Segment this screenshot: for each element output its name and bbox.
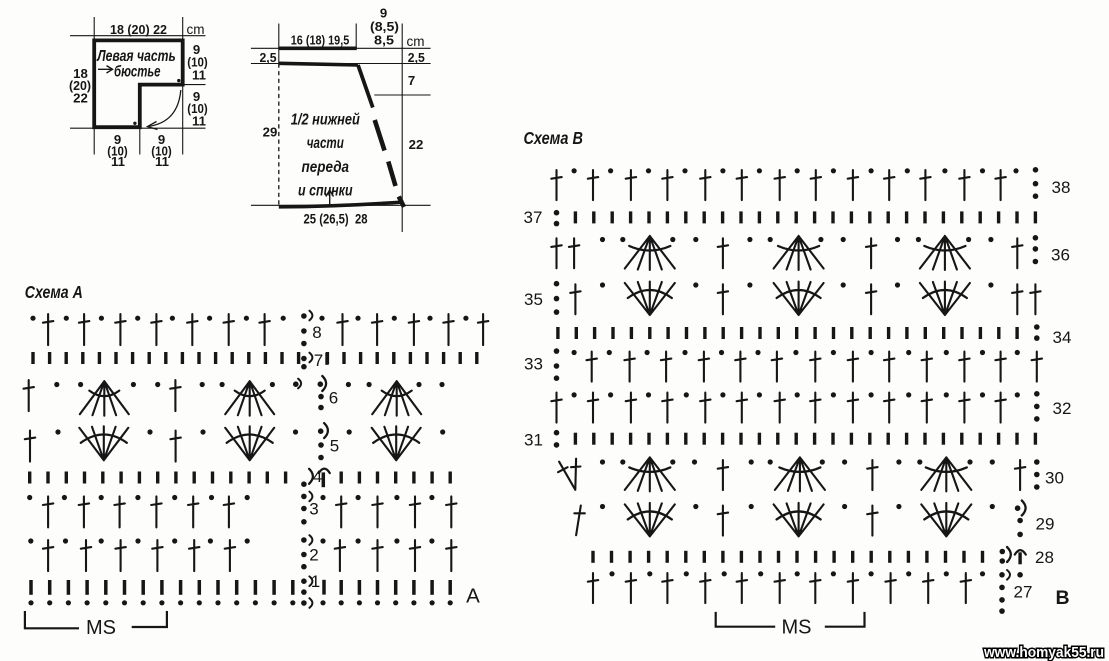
svg-text:3: 3 bbox=[309, 500, 318, 519]
svg-text:части: части bbox=[307, 135, 344, 152]
svg-text:11: 11 bbox=[155, 154, 169, 169]
svg-text:B: B bbox=[1055, 587, 1069, 609]
svg-text:27: 27 bbox=[1014, 583, 1033, 602]
svg-text:11: 11 bbox=[192, 68, 206, 83]
svg-text:1: 1 bbox=[311, 572, 320, 591]
svg-text:4: 4 bbox=[313, 467, 322, 486]
svg-text:33: 33 bbox=[524, 355, 543, 374]
svg-text:37: 37 bbox=[524, 208, 543, 227]
svg-text:A: A bbox=[466, 585, 480, 608]
svg-text:и спинки: и спинки bbox=[298, 182, 353, 199]
svg-text:22: 22 bbox=[73, 91, 88, 106]
svg-text:1/2 нижней: 1/2 нижней bbox=[291, 112, 360, 129]
svg-text:переда: переда bbox=[302, 159, 350, 176]
svg-text:22: 22 bbox=[409, 137, 424, 152]
svg-text:8: 8 bbox=[312, 323, 321, 342]
svg-text:16 (18) 19,5: 16 (18) 19,5 bbox=[291, 33, 350, 48]
svg-text:29: 29 bbox=[1036, 515, 1055, 534]
svg-text:36: 36 bbox=[1051, 246, 1070, 265]
svg-text:5: 5 bbox=[330, 436, 339, 455]
svg-text:Левая часть: Левая часть bbox=[96, 48, 175, 65]
svg-text:7: 7 bbox=[314, 351, 323, 370]
svg-text:www.homyak55.ru: www.homyak55.ru bbox=[983, 644, 1104, 661]
svg-text:7: 7 bbox=[408, 73, 415, 88]
svg-text:18 (20) 22: 18 (20) 22 bbox=[110, 22, 167, 37]
svg-text:28: 28 bbox=[1035, 548, 1054, 567]
svg-text:34: 34 bbox=[1053, 328, 1072, 347]
svg-text:Схема B: Схема B bbox=[523, 128, 583, 148]
svg-text:MS: MS bbox=[782, 617, 812, 639]
svg-text:бюстье: бюстье bbox=[114, 64, 161, 81]
svg-text:2,5: 2,5 bbox=[260, 50, 277, 65]
svg-text:31: 31 bbox=[524, 431, 543, 450]
svg-text:32: 32 bbox=[1053, 399, 1072, 418]
svg-text:cm: cm bbox=[187, 22, 205, 37]
svg-text:cm: cm bbox=[407, 34, 425, 49]
svg-text:11: 11 bbox=[111, 154, 125, 169]
svg-text:6: 6 bbox=[329, 389, 338, 408]
svg-text:MS: MS bbox=[86, 617, 116, 639]
svg-text:2: 2 bbox=[309, 546, 318, 565]
svg-text:35: 35 bbox=[524, 290, 543, 309]
svg-text:30: 30 bbox=[1045, 469, 1064, 488]
svg-text:11: 11 bbox=[192, 114, 206, 129]
svg-text:38: 38 bbox=[1052, 178, 1071, 197]
svg-text:25 (26,5) 28: 25 (26,5) 28 bbox=[304, 211, 368, 226]
svg-text:29: 29 bbox=[263, 125, 278, 140]
svg-text:Схема A: Схема A bbox=[25, 282, 83, 302]
svg-text:8,5: 8,5 bbox=[374, 33, 394, 48]
svg-text:2,5: 2,5 bbox=[408, 50, 425, 65]
